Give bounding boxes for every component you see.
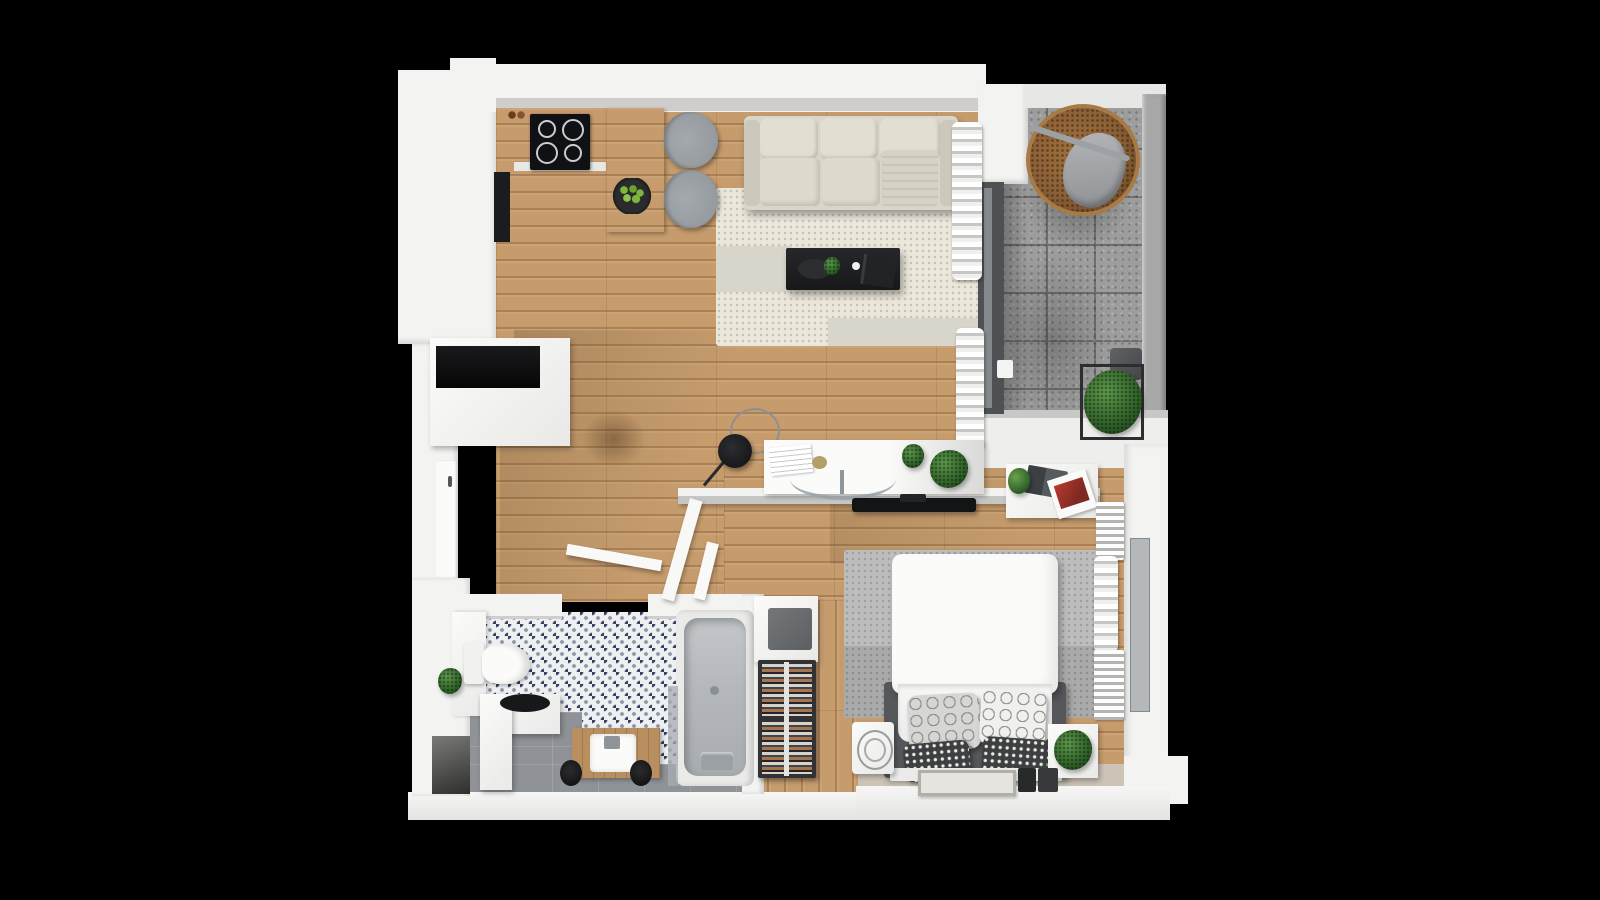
sheer-curtain	[956, 328, 984, 448]
sofa-seat-cushion	[822, 158, 880, 206]
sheer-curtain	[952, 122, 982, 280]
vanity-stool	[630, 760, 652, 786]
sofa-back-cushion	[820, 118, 878, 160]
bathtub-drain	[710, 686, 719, 695]
floor-mat-dark	[1018, 768, 1036, 792]
glass-partition	[668, 686, 678, 786]
entrance-door	[436, 460, 458, 578]
balcony-railing	[1142, 94, 1166, 448]
sofa-back-cushion	[760, 118, 818, 160]
arc-floor-lamp-shade	[718, 434, 752, 468]
burner	[538, 120, 556, 138]
sofa-seat-cushion	[760, 158, 820, 206]
wall-pillar-living-balcony	[978, 84, 1028, 184]
burner	[564, 144, 582, 162]
notebook	[860, 254, 897, 288]
sofa-left-arm	[744, 120, 760, 206]
cooktop	[530, 114, 590, 170]
vanity-faucet	[604, 736, 620, 749]
fan-heater	[852, 722, 894, 774]
bathtub-faucet	[700, 752, 734, 770]
black-vessel-sink	[500, 694, 550, 712]
floor-mat-dark	[1038, 768, 1058, 792]
hall-console-niche	[436, 346, 540, 388]
entry-niche	[432, 736, 470, 794]
dining-chair	[664, 170, 718, 228]
toilet-bowl	[482, 644, 530, 684]
toilet-tank	[464, 642, 484, 684]
glass-wall-glazing	[984, 188, 992, 408]
burner	[536, 142, 558, 164]
entrance-door-handle	[448, 476, 452, 487]
bedroom-wavy-curtain	[1094, 556, 1118, 652]
lamp-shadow	[582, 410, 646, 468]
glass-door-handle	[997, 360, 1013, 378]
magazine-cover-photo	[1054, 477, 1090, 509]
spice-jars	[508, 110, 526, 120]
floor-plan-canvas	[0, 0, 1600, 900]
dining-chair	[664, 112, 718, 168]
green-apples	[619, 185, 645, 207]
sofa-throw-blanket	[882, 150, 938, 206]
wine-rack	[758, 660, 816, 778]
bed-duvet	[892, 554, 1058, 694]
washing-machine-top	[768, 608, 812, 650]
radiator	[1096, 502, 1124, 560]
wine-rack-rail	[784, 662, 789, 776]
doormat	[918, 770, 1016, 796]
oven-column	[494, 172, 510, 242]
vanity-stool	[560, 760, 582, 786]
fruit-bowl	[612, 178, 652, 214]
radiator	[1094, 650, 1124, 720]
tv-stand	[900, 494, 926, 502]
burner	[562, 119, 584, 141]
bedroom-window	[1130, 538, 1150, 712]
acrylic-chair-leg	[840, 470, 844, 494]
fan-grille-inner	[864, 738, 886, 762]
coffee-cup	[852, 262, 860, 270]
living-room-rug-gray-patch	[716, 246, 792, 292]
